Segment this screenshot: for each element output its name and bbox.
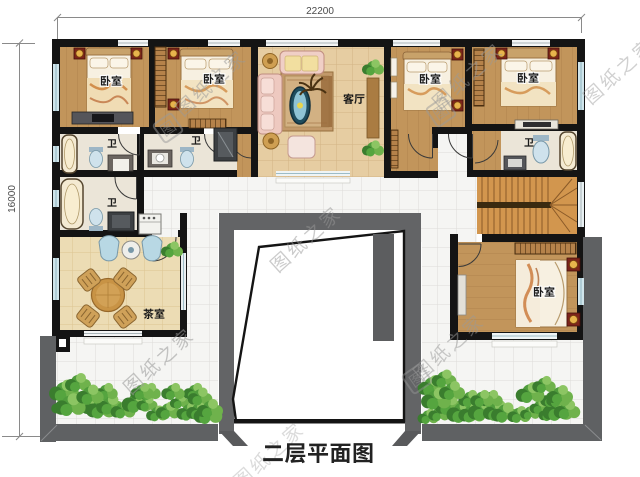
- svg-text:22200: 22200: [306, 6, 334, 17]
- svg-text:16000: 16000: [7, 185, 18, 213]
